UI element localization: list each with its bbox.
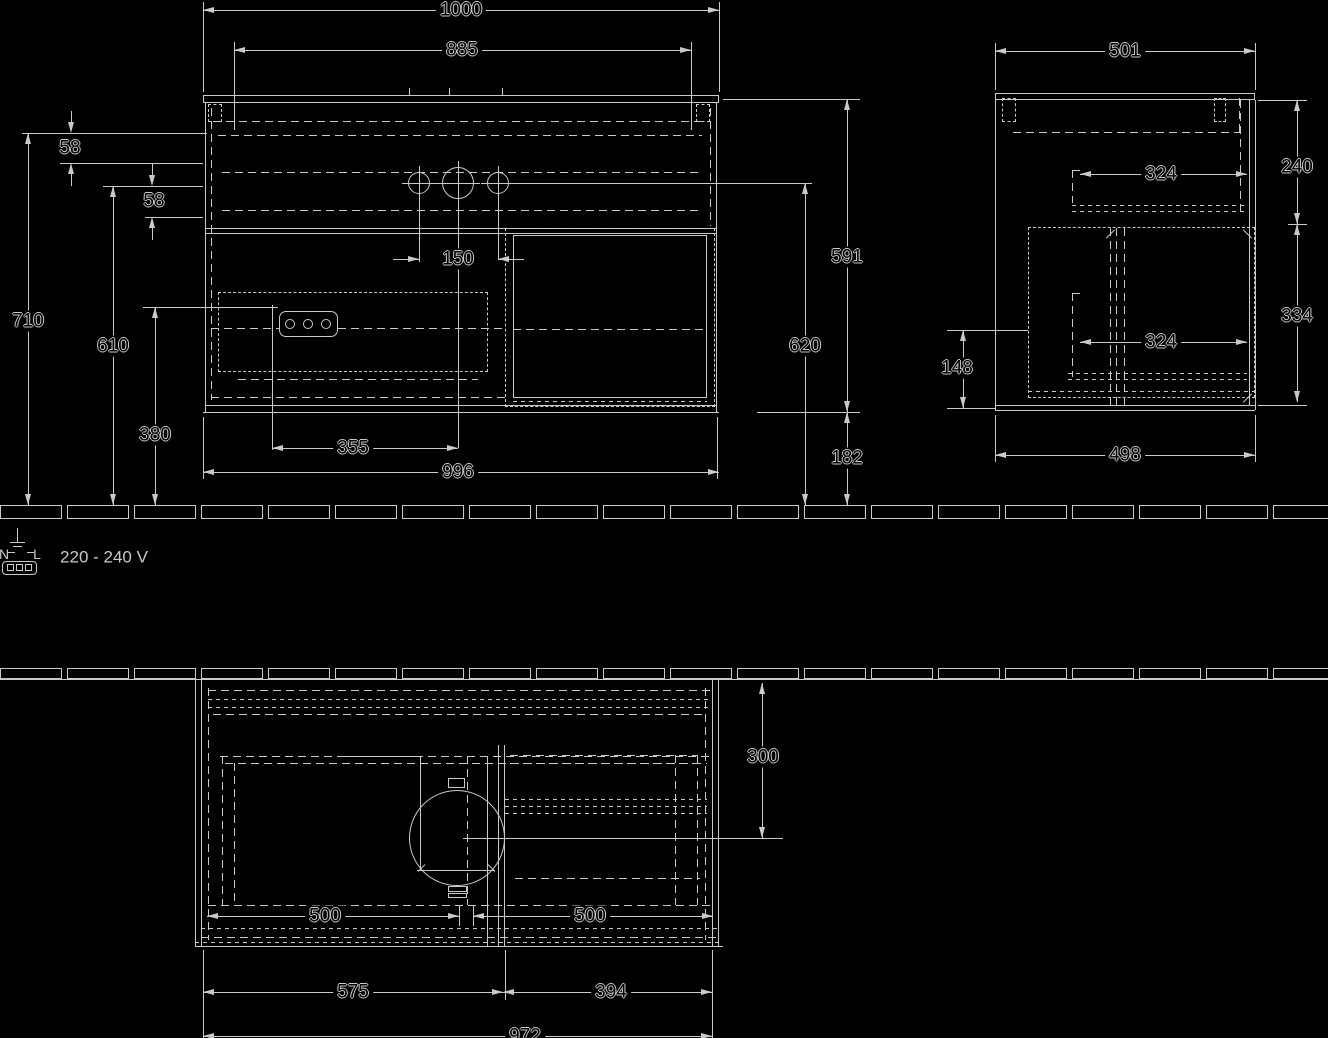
wall-bracket-dashed xyxy=(1214,98,1226,122)
plan-hatch-row xyxy=(505,813,707,814)
door-panel xyxy=(513,235,707,398)
rail-bracket-dashed xyxy=(1072,293,1073,377)
wall-line xyxy=(0,679,1328,680)
drawer-bottom-hatch xyxy=(1028,391,1255,392)
arrowhead xyxy=(492,989,503,995)
drain-mark xyxy=(448,886,467,892)
arrowhead xyxy=(802,494,808,505)
ext-line xyxy=(1255,43,1256,90)
arrowhead xyxy=(759,683,765,694)
dim-separator-tick xyxy=(459,906,460,926)
rail-bracket-dashed xyxy=(1072,170,1073,203)
arrowhead xyxy=(960,330,966,341)
plan-front-edge xyxy=(195,946,723,947)
dim-line xyxy=(203,1036,712,1037)
arrowhead xyxy=(503,989,514,995)
arrowhead xyxy=(844,494,850,505)
earth-icon xyxy=(10,542,25,543)
arrowhead xyxy=(708,7,719,13)
arrowhead xyxy=(759,827,765,838)
cabinet-edge-left xyxy=(205,103,206,412)
cabinet-bottom xyxy=(203,412,719,413)
arrowhead xyxy=(68,122,74,133)
drawer-bottom-hatch xyxy=(1068,373,1247,374)
drawer-dashed-line xyxy=(238,379,478,380)
wall-bracket-dashed xyxy=(1002,98,1016,122)
arrowhead xyxy=(844,99,850,110)
socket-hole xyxy=(303,319,313,329)
dashed-centerline xyxy=(211,328,279,329)
ext-line xyxy=(22,133,207,134)
dim-label-58a: 58 xyxy=(55,138,84,159)
plan-drawer-side xyxy=(234,763,235,905)
tap-hole-crosshair xyxy=(402,183,436,184)
plan-edge-dashed xyxy=(705,688,706,940)
dim-label-300: 300 xyxy=(743,747,783,768)
arrowhead xyxy=(1294,391,1300,402)
arrowhead xyxy=(149,175,155,186)
plan-right-side xyxy=(675,755,676,905)
centerline xyxy=(498,200,499,259)
side-edge-left xyxy=(995,100,996,410)
dim-label-620: 620 xyxy=(785,336,825,357)
ext-line xyxy=(234,42,235,130)
socket-hole xyxy=(285,319,295,329)
earth-icon xyxy=(17,528,18,542)
dim-label-334: 334 xyxy=(1277,306,1317,327)
plan-drawer-side xyxy=(222,756,223,905)
dim-label-591: 591 xyxy=(827,247,867,268)
centerline xyxy=(419,200,420,262)
drawer-dashed-line xyxy=(218,135,702,136)
arrowhead xyxy=(473,913,484,919)
arrowhead xyxy=(802,183,808,194)
dashed-centerline xyxy=(338,328,505,329)
arrowhead xyxy=(708,469,719,475)
drawer-bottom-hatch xyxy=(1072,211,1247,212)
cutout-chord-line xyxy=(417,870,495,871)
drain-mark xyxy=(448,893,467,898)
dim-label-182: 182 xyxy=(827,448,867,469)
dim-label-240: 240 xyxy=(1277,157,1317,178)
drawer-dashed-line xyxy=(213,121,707,122)
arrowhead xyxy=(68,163,74,174)
arrowhead xyxy=(1080,171,1091,177)
plan-right-row xyxy=(510,755,697,756)
terminal-line xyxy=(27,552,34,553)
arrowhead xyxy=(203,7,214,13)
arrowhead xyxy=(701,1033,712,1038)
arrowhead xyxy=(25,494,31,505)
drawer-outline-dashed xyxy=(218,292,488,372)
arrowhead xyxy=(995,48,1006,54)
arrowhead xyxy=(448,913,459,919)
plan-right-row xyxy=(510,763,697,764)
wall-hatch-band xyxy=(0,668,1328,679)
dim-label-610: 610 xyxy=(93,336,133,357)
dim-tail xyxy=(71,174,72,186)
plan-edge-right xyxy=(718,679,719,946)
plan-edge-right xyxy=(712,679,713,946)
ext-line xyxy=(691,42,692,130)
wall-bracket-dashed xyxy=(696,104,710,122)
plan-hatch-row xyxy=(505,799,707,800)
dim-label-355: 355 xyxy=(333,438,373,459)
plug-pin xyxy=(16,564,23,571)
plan-front-row xyxy=(208,905,712,906)
dim-label-500a: 500 xyxy=(305,906,345,927)
plan-counter-edge xyxy=(342,756,418,757)
dim-label-1000: 1000 xyxy=(436,0,486,21)
ext-line xyxy=(712,950,713,1038)
drawer-dashed-line xyxy=(1240,100,1241,211)
ext-line xyxy=(947,408,995,409)
dim-label-324b: 324 xyxy=(1141,332,1181,353)
drawer-dashed-line xyxy=(222,210,698,211)
plan-edge-left xyxy=(201,679,202,946)
wall-bracket-dashed xyxy=(208,104,222,122)
arrowhead xyxy=(960,397,966,408)
arrowhead xyxy=(110,186,116,197)
terminal-label-l: L xyxy=(31,547,43,561)
plan-counter-edge xyxy=(220,756,712,757)
dim-label-58b: 58 xyxy=(139,191,168,212)
tap-hole-crosshair xyxy=(436,183,480,184)
arrowhead xyxy=(234,47,245,53)
arrowhead xyxy=(203,1033,214,1038)
terminal-line xyxy=(8,552,15,553)
arrowhead xyxy=(149,217,155,228)
arrowhead xyxy=(1294,224,1300,235)
dim-label-498: 498 xyxy=(1105,445,1145,466)
arrowhead xyxy=(1244,452,1255,458)
socket-hole xyxy=(321,319,331,329)
slab-tick xyxy=(409,88,410,95)
cabinet-edge-right xyxy=(716,103,717,412)
ext-line xyxy=(1255,415,1256,462)
plan-front-row xyxy=(201,928,718,929)
arrowhead xyxy=(272,445,283,451)
arrowhead xyxy=(1236,171,1247,177)
dim-label-394: 394 xyxy=(591,982,631,1003)
dim-label-380: 380 xyxy=(135,425,175,446)
arrowhead xyxy=(995,452,1006,458)
ext-line xyxy=(995,43,996,90)
arrowhead xyxy=(1244,48,1255,54)
arrowhead xyxy=(680,47,691,53)
drawer-bottom-hatch xyxy=(1068,379,1247,380)
plan-edge-left xyxy=(195,679,196,946)
technical-drawing-canvas: 1000 885 58 58 710 610 380 xyxy=(0,0,1328,1038)
arrowhead xyxy=(110,494,116,505)
slab-tick xyxy=(502,88,503,95)
ext-line xyxy=(723,99,860,100)
rail-bracket-dashed xyxy=(1072,293,1082,294)
socket-centerline xyxy=(272,305,273,450)
door-dashed-midline xyxy=(513,329,707,330)
dim-label-501: 501 xyxy=(1105,41,1145,62)
ext-line xyxy=(203,2,204,92)
dim-label-500b: 500 xyxy=(570,906,610,927)
arrowhead xyxy=(203,989,214,995)
plug-pin xyxy=(7,564,14,571)
plan-front-row xyxy=(195,942,723,943)
ext-line xyxy=(1258,405,1307,406)
plan-back-row xyxy=(213,714,707,715)
cabinet-inner-edge-dashed xyxy=(710,108,711,226)
plug-pin xyxy=(25,564,32,571)
dim-tail xyxy=(152,228,153,240)
ext-line xyxy=(509,183,812,184)
dim-label-710: 710 xyxy=(8,311,48,332)
drawer-bottom-hatch xyxy=(1072,205,1247,206)
plan-back-row xyxy=(208,699,712,700)
arrowhead xyxy=(25,133,31,144)
arrowhead xyxy=(1080,339,1091,345)
plan-hatch-row xyxy=(505,806,707,807)
arrowhead xyxy=(702,913,713,919)
arrowhead xyxy=(203,469,214,475)
arrowhead xyxy=(1294,213,1300,224)
door-dotted-row xyxy=(513,401,707,402)
side-bottom xyxy=(995,410,1255,411)
dim-label-996: 996 xyxy=(438,462,478,483)
tap-hole-mark xyxy=(448,778,465,788)
ext-line xyxy=(103,186,203,187)
earth-icon xyxy=(13,546,22,547)
arrowhead xyxy=(1236,339,1247,345)
voltage-label: 220 - 240 V xyxy=(56,548,152,567)
arrowhead xyxy=(844,401,850,412)
side-edge-right xyxy=(1255,100,1256,410)
basin-slab xyxy=(203,95,719,103)
slab-tick xyxy=(449,88,450,95)
cabinet-bottom xyxy=(205,405,716,406)
arrowhead xyxy=(152,307,158,318)
arrowhead xyxy=(408,256,419,262)
plan-back-row xyxy=(208,690,712,691)
plan-right-side xyxy=(697,755,698,905)
floor-hatch-band xyxy=(0,505,1328,519)
plan-front-row xyxy=(201,937,718,938)
dim-label-148: 148 xyxy=(937,358,977,379)
dim-line xyxy=(155,307,156,505)
arrowhead xyxy=(844,412,850,423)
terminal-label-n: N xyxy=(0,547,11,561)
plan-edge-dashed xyxy=(208,688,209,940)
dim-label-150: 150 xyxy=(438,249,478,270)
cabinet-inner-edge-dashed xyxy=(211,108,212,400)
ext-line xyxy=(60,163,203,164)
dim-label-575: 575 xyxy=(333,982,373,1003)
arrowhead xyxy=(207,913,218,919)
plan-right-row xyxy=(515,878,700,879)
drawer-dashed-line xyxy=(1013,132,1240,133)
arrowhead xyxy=(1294,100,1300,111)
arrowhead xyxy=(701,989,712,995)
arrowhead xyxy=(152,494,158,505)
dim-label-885: 885 xyxy=(442,40,482,61)
plan-back-row xyxy=(208,707,712,708)
drawer-dashed-line xyxy=(211,397,505,398)
arrowhead xyxy=(447,445,458,451)
ext-line xyxy=(719,2,720,92)
dim-label-324a: 324 xyxy=(1141,164,1181,185)
ext-line xyxy=(463,838,783,839)
dim-label-972: 972 xyxy=(505,1026,545,1038)
side-bottom xyxy=(995,405,1255,406)
